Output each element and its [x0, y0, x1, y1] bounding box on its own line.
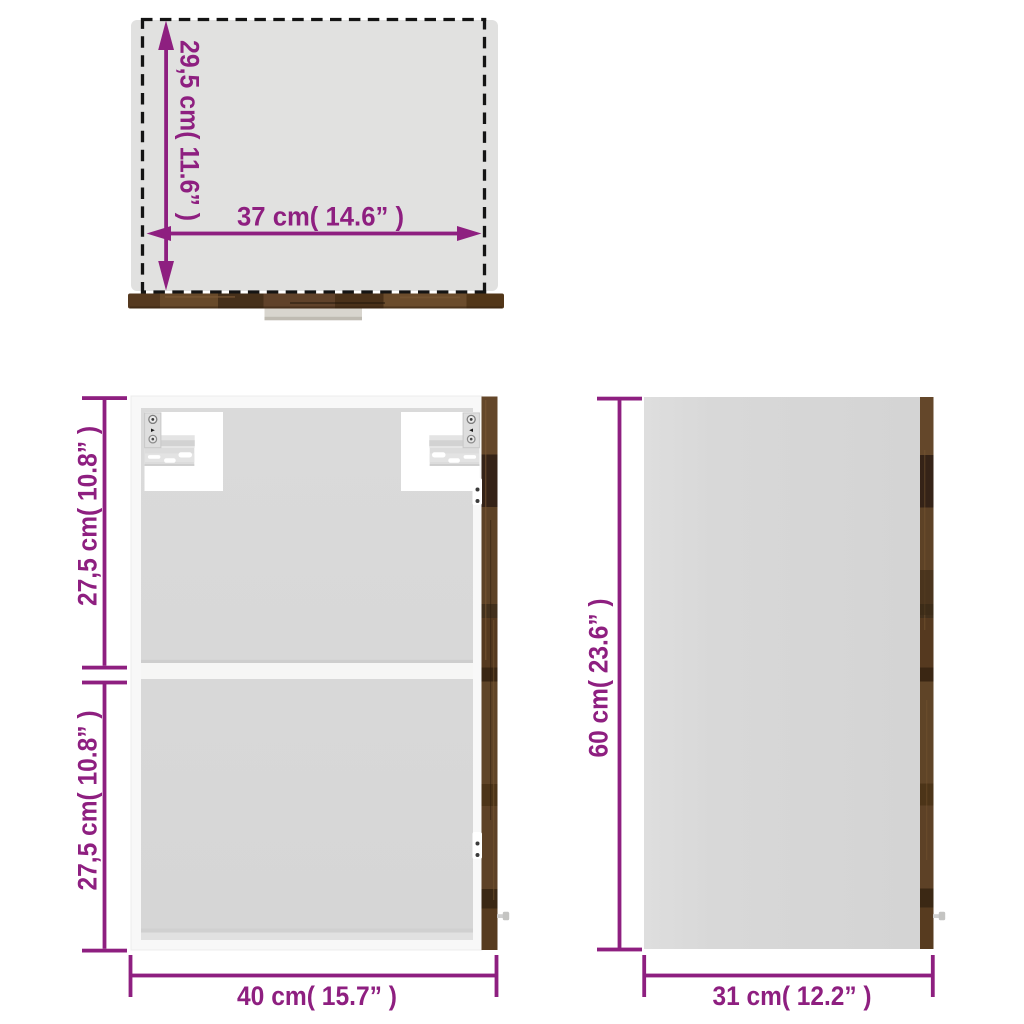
svg-text:27,5 cm( 10.8” ): 27,5 cm( 10.8” ) [73, 426, 103, 606]
svg-text:37 cm( 14.6” ): 37 cm( 14.6” ) [237, 202, 404, 232]
svg-text:60 cm( 23.6” ): 60 cm( 23.6” ) [584, 599, 614, 758]
svg-text:27,5 cm( 10.8” ): 27,5 cm( 10.8” ) [73, 711, 103, 891]
svg-text:31 cm( 12.2” ): 31 cm( 12.2” ) [713, 981, 872, 1011]
svg-text:40 cm( 15.7” ): 40 cm( 15.7” ) [237, 981, 397, 1011]
svg-text:29,5 cm( 11.6” ): 29,5 cm( 11.6” ) [175, 40, 205, 221]
